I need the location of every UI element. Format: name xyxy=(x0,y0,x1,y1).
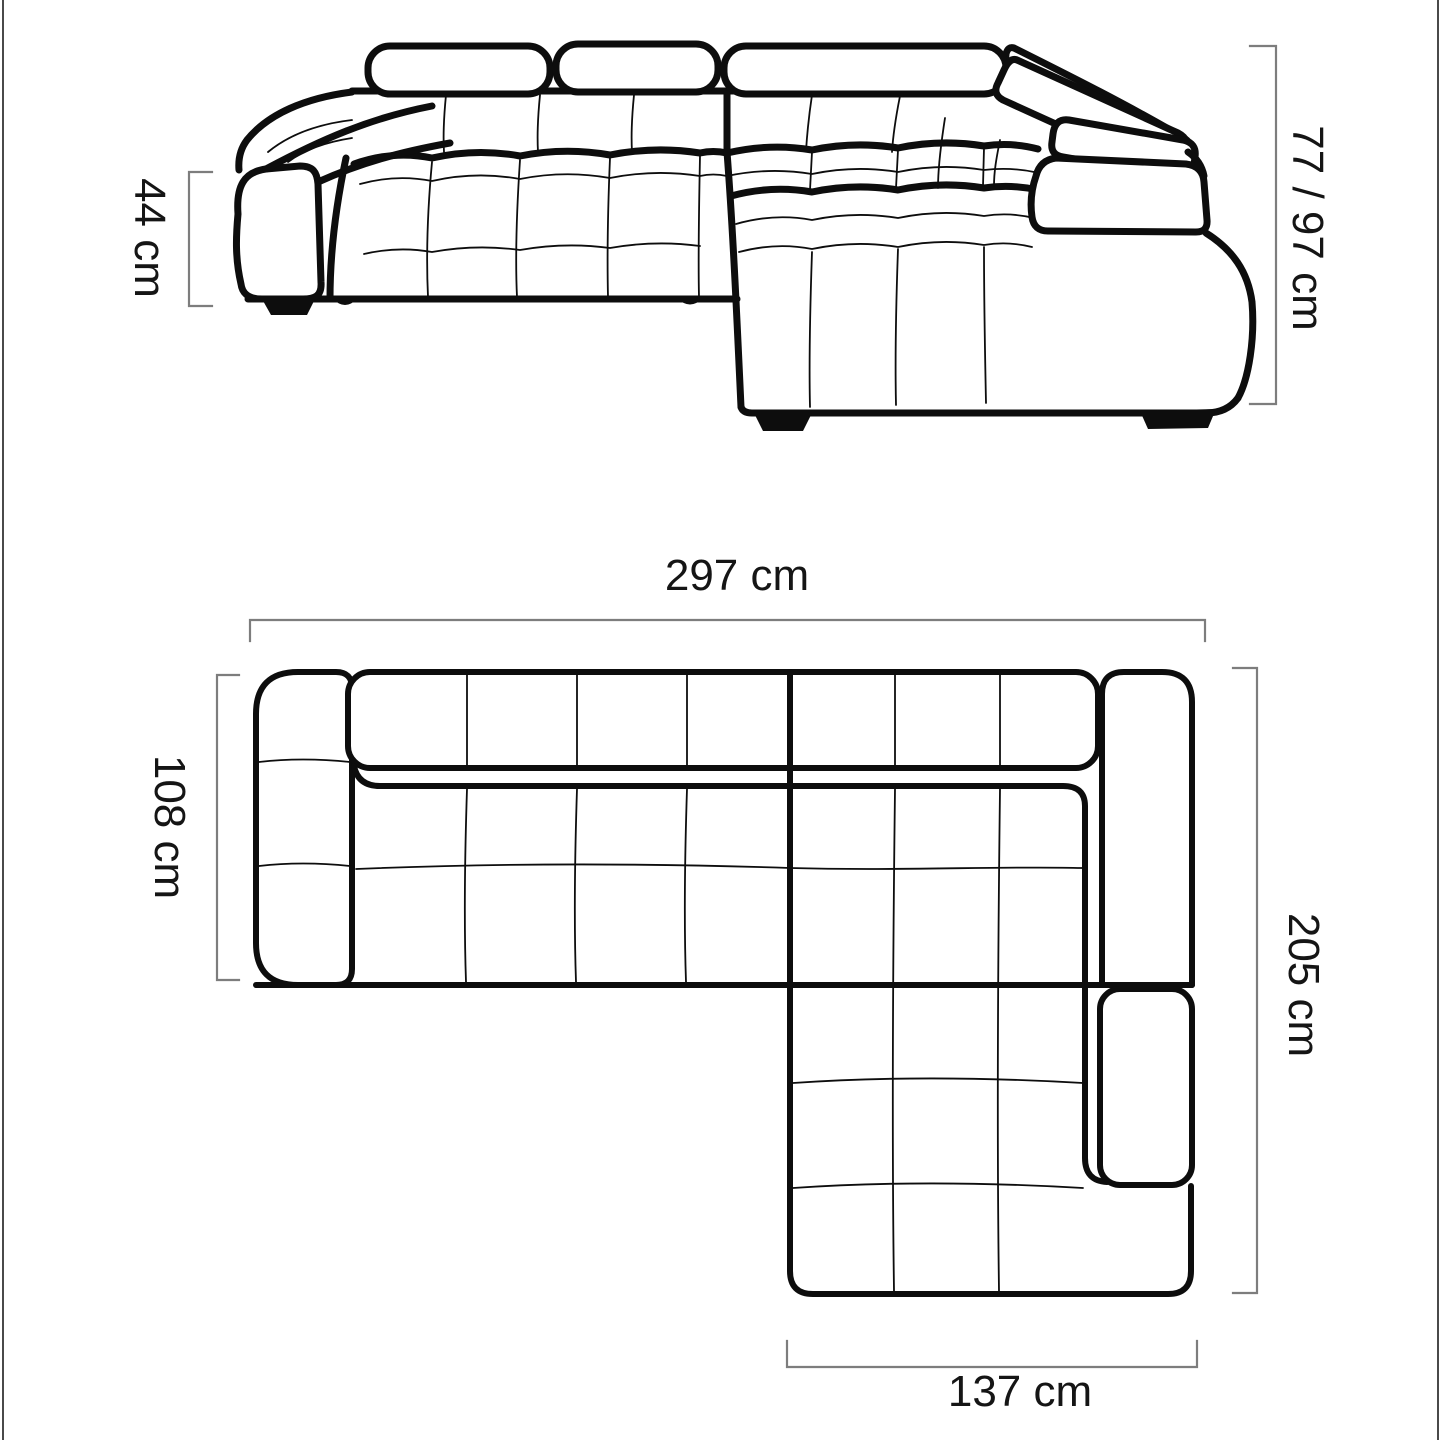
chaise-crease-1 xyxy=(736,213,1034,224)
dim-chaise-width-bracket xyxy=(787,1341,1197,1367)
dim-seat-depth-bracket xyxy=(217,675,239,980)
sofa-dimension-diagram: 44 cm 77 / 97 cm 297 cm 108 cm 205 cm 13… xyxy=(0,0,1440,1440)
plan-right-armrest-upper xyxy=(1102,672,1192,985)
seat-front-roll-crease xyxy=(364,243,700,254)
left-armrest-front-face xyxy=(236,166,321,299)
total-width-label: 297 cm xyxy=(665,554,809,598)
sofa-line-art xyxy=(0,0,1440,1440)
back-left-corner xyxy=(239,92,352,170)
plan-view-drawing xyxy=(256,672,1192,1294)
chaise-top-edge xyxy=(731,185,1038,196)
dim-total-width-bracket xyxy=(250,620,1205,641)
total-depth-label: 205 cm xyxy=(1281,913,1325,1057)
headrest-cushion-3 xyxy=(724,46,1006,94)
headrest-cushion-1 xyxy=(368,46,550,94)
headrest-cushion-2 xyxy=(556,44,718,92)
chaise-tuft-lines xyxy=(810,118,1000,407)
plan-backrest-inner-edge xyxy=(354,766,1107,1182)
plan-left-armrest xyxy=(256,672,352,985)
plan-backrest xyxy=(348,672,1098,768)
dim-total-depth-bracket xyxy=(1233,668,1257,1293)
back-height-label: 77 / 97 cm xyxy=(1285,125,1329,330)
chaise-crease-2 xyxy=(739,242,1032,252)
seat-top-edge xyxy=(354,143,1038,164)
chaise-width-label: 137 cm xyxy=(948,1370,1092,1414)
seat-top-crease xyxy=(360,167,1034,184)
chaise-left-edge xyxy=(727,152,741,407)
right-armrest-front-face xyxy=(1031,158,1207,232)
perspective-view-drawing xyxy=(236,44,1252,431)
chaise-right-edge xyxy=(1206,233,1253,398)
seat-height-label: 44 cm xyxy=(127,178,171,298)
dim-seat-height-bracket xyxy=(189,172,212,306)
seat-tuft-lines xyxy=(427,156,700,297)
plan-right-armrest-cushion xyxy=(1100,989,1192,1185)
seat-depth-label: 108 cm xyxy=(147,755,191,899)
